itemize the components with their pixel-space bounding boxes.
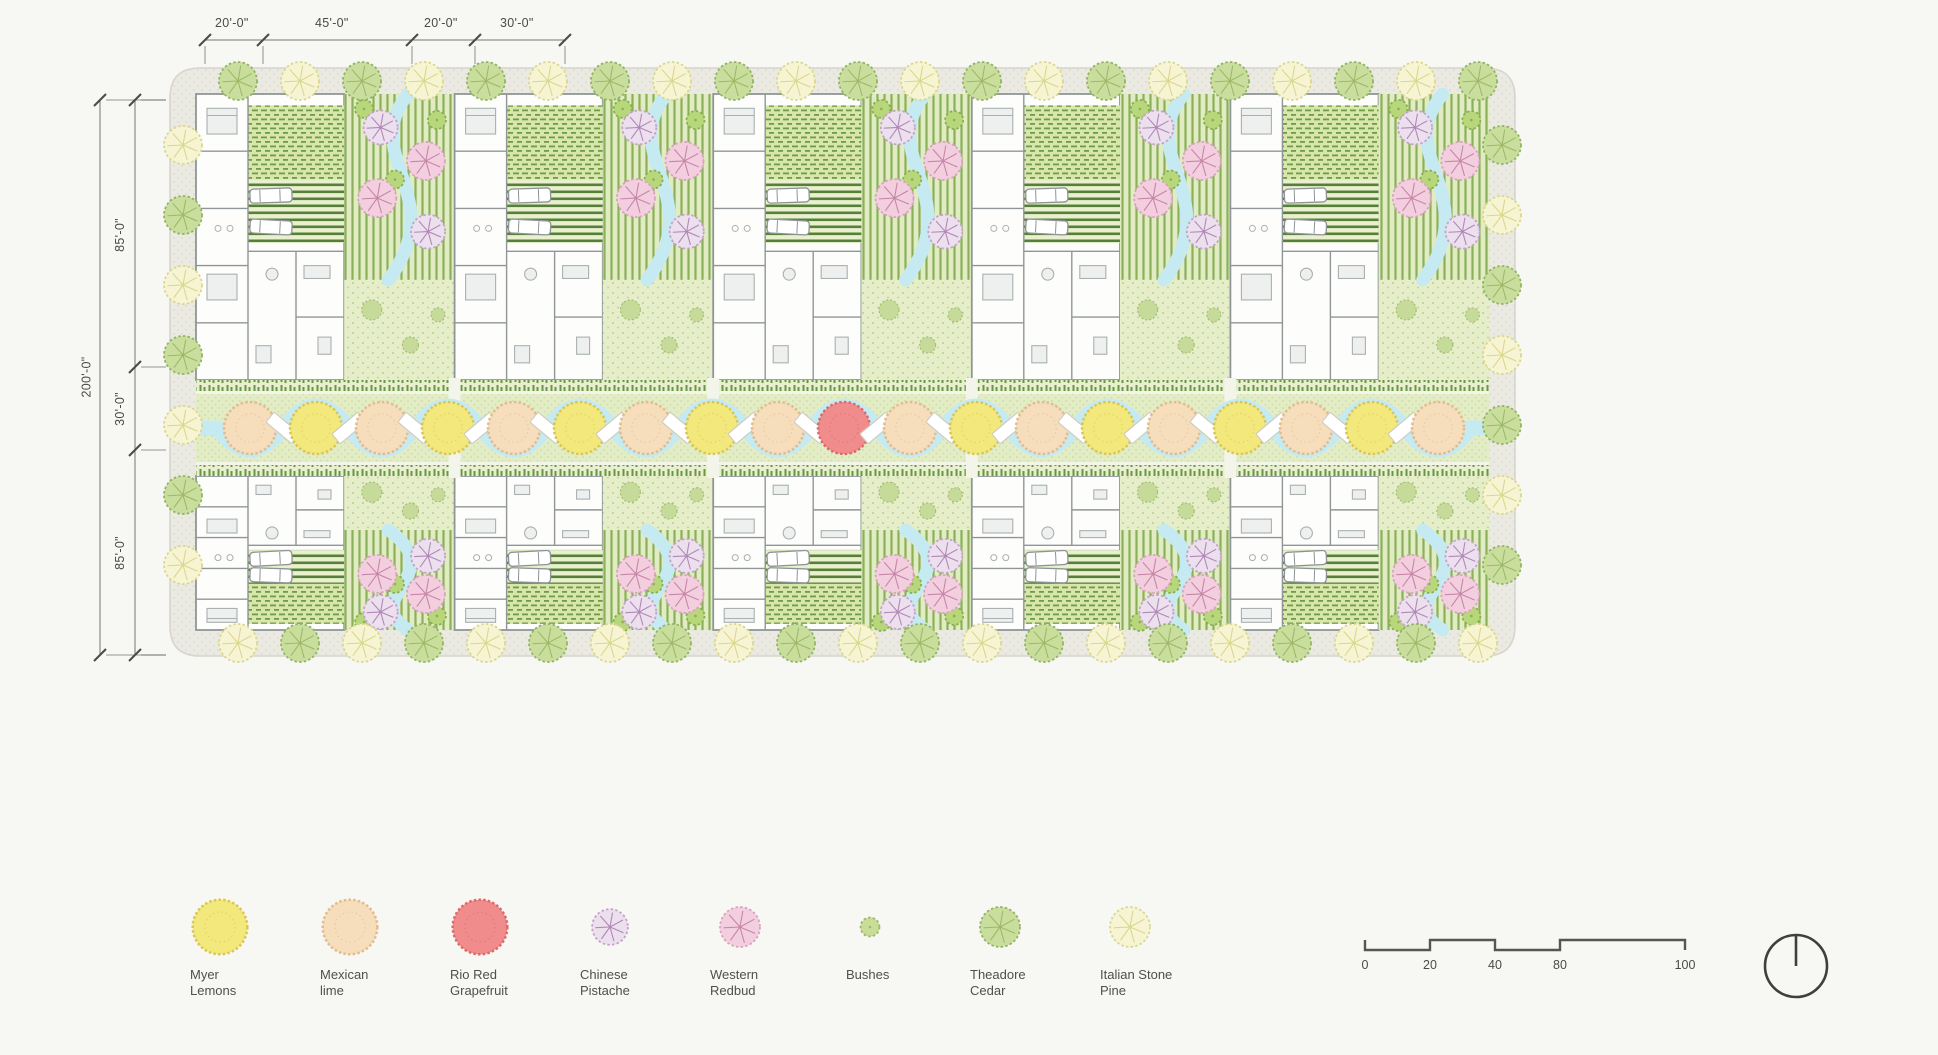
car [1026,568,1068,583]
furniture [207,274,237,300]
furniture [1241,608,1271,622]
chinese-pistache-tree [670,539,704,573]
orchard-plot [1024,105,1120,179]
garden-strip [603,476,713,631]
garden-strip [1379,476,1489,631]
small-green-tree [1462,111,1480,129]
garden-strip [344,94,454,380]
small-green-tree [428,111,446,129]
western-redbud-tree [876,179,914,217]
furniture [724,108,754,134]
legend-label: Chinese Pistache [580,967,652,1000]
orchard-plot [765,584,861,624]
furniture [1032,485,1047,494]
theadore-cedar-tree [1087,62,1125,100]
legend-label: Myer Lemons [190,967,262,1000]
italian-stone-pine-tree [164,406,202,444]
scale-bar: 0 20 40 80 100 [1355,930,1705,990]
orchard-plot [507,105,603,179]
western-redbud-tree [924,142,962,180]
dim-left-seg-2: 30'-0" [113,392,127,426]
mexican-lime-tree [1412,402,1464,454]
italian-stone-pine-tree [653,62,691,100]
western-redbud-symbol [710,893,770,959]
chinese-pistache-tree [364,595,398,629]
furniture [318,490,331,499]
car [508,550,551,566]
western-redbud-tree [358,179,396,217]
western-redbud-tree [1183,575,1221,613]
furniture [1338,531,1364,538]
furniture [1352,490,1365,499]
mexican-lime-tree [1016,402,1068,454]
bushes-tree [861,918,880,937]
chinese-pistache-tree [881,595,915,629]
western-redbud-tree [924,575,962,613]
furniture [256,485,271,494]
chinese-pistache-tree [411,215,445,249]
theadore-cedar-tree [343,62,381,100]
western-redbud-tree [876,555,914,593]
italian-stone-pine-tree [164,126,202,164]
bush [920,337,936,353]
bush [431,308,445,322]
chinese-pistache-tree [928,539,962,573]
mexican-lime-tree [620,402,672,454]
bushes-symbol [840,893,900,959]
rio-red-grapefruit-tree [453,900,508,955]
car [508,568,550,583]
dim-top-1: 20'-0" [215,16,249,30]
orchard-plot [248,105,344,179]
italian-stone-pine-symbol [1100,893,1160,959]
orchard-plot [1024,584,1120,624]
bush [1178,503,1194,519]
north-arrow-icon [1758,926,1838,1006]
furniture [563,531,589,538]
western-redbud-tree [407,142,445,180]
bush [948,488,962,502]
rio-red-grapefruit-tree [818,402,870,454]
theadore-cedar-tree [653,624,691,662]
car [250,550,293,566]
car [508,219,551,235]
furniture [515,485,530,494]
bush [690,308,704,322]
unit-row-top [196,94,1489,380]
bush [1437,503,1453,519]
meadow [603,476,713,530]
dim-top-2: 45'-0" [315,16,349,30]
bush [620,482,640,502]
scale-tick-40: 40 [1488,958,1502,972]
western-redbud-tree [665,575,703,613]
western-redbud-tree [617,555,655,593]
site-plan-canvas: 20'-0" 45'-0" 20'-0" 30'-0" 200'-0" 85'-… [0,0,1938,1055]
italian-stone-pine-tree [219,624,257,662]
furniture [724,274,754,300]
car [508,188,550,203]
bush [402,503,418,519]
meadow [861,280,971,380]
unit-row-bottom [196,476,1489,631]
scale-tick-80: 80 [1553,958,1567,972]
italian-stone-pine-tree [529,62,567,100]
myer-lemon-tree [422,402,474,454]
italian-stone-pine-tree [1335,624,1373,662]
car [250,188,292,203]
theadore-cedar-tree [777,624,815,662]
legend-label: Italian Stone Pine [1100,967,1192,1000]
chinese-pistache-tree [928,215,962,249]
legend-item-chinese-pistache: Chinese Pistache [580,893,710,1000]
italian-stone-pine-tree [1025,62,1063,100]
bush [920,503,936,519]
dim-top-4: 30'-0" [500,16,534,30]
western-redbud-tree [1393,179,1431,217]
bush [1207,488,1221,502]
housing-unit [713,94,861,380]
central-promenade [196,378,1489,478]
chinese-pistache-symbol [580,893,640,959]
furniture [1290,485,1305,494]
car [1284,219,1327,235]
italian-stone-pine-tree [901,62,939,100]
mexican-lime-tree [323,900,378,955]
chinese-pistache-tree [670,215,704,249]
orchard-plot [1282,584,1378,624]
car [250,568,292,583]
legend-label: Rio Red Grapefruit [450,967,522,1000]
theadore-cedar-tree [164,476,202,514]
furniture [773,346,788,363]
meadow [1120,476,1230,530]
theadore-cedar-tree [839,62,877,100]
theadore-cedar-symbol [970,893,1030,959]
furniture [983,519,1013,533]
hedge-row [196,464,1489,476]
housing-unit [196,476,344,630]
housing-unit [196,94,344,380]
legend-item-western-redbud: Western Redbud [710,893,840,1000]
housing-unit [455,94,603,380]
italian-stone-pine-tree [1483,476,1521,514]
legend-item-theadore-cedar: Theadore Cedar [970,893,1100,1000]
hedge-row [196,380,1489,392]
theadore-cedar-tree [591,62,629,100]
bush [362,300,382,320]
italian-stone-pine-tree [1149,62,1187,100]
legend-item-rio-red-grapefruit: Rio Red Grapefruit [450,893,580,1000]
garden-strip [1120,476,1230,631]
scale-bar-graphic [1355,930,1705,956]
orchard-plot [765,105,861,179]
bush [1465,308,1479,322]
furniture [821,531,847,538]
furniture [1241,274,1271,300]
furniture [1241,108,1271,134]
bush [690,488,704,502]
theadore-cedar-tree [1483,266,1521,304]
legend: Myer Lemons Mexican lime Rio Red Grapefr… [190,893,1230,1000]
dim-top-3: 20'-0" [424,16,458,30]
orchard-plot [248,584,344,624]
myer-lemon-tree [1082,402,1134,454]
myer-lemon-legend-glyph [190,895,250,957]
italian-stone-pine-tree [343,624,381,662]
western-redbud-tree [1134,555,1172,593]
theadore-cedar-tree [1025,624,1063,662]
garden-strip [344,476,454,631]
theadore-cedar-tree [405,624,443,662]
housing-unit [972,476,1120,630]
small-green-tree [945,111,963,129]
legend-item-mexican-lime: Mexican lime [320,893,450,1000]
italian-stone-pine-legend-glyph [1100,895,1160,957]
furniture [207,608,237,622]
car [1026,188,1068,203]
western-redbud-tree [1393,555,1431,593]
italian-stone-pine-tree [1211,624,1249,662]
small-green-tree [1204,111,1222,129]
bush [948,308,962,322]
theadore-cedar-tree [1397,624,1435,662]
car [1025,550,1068,566]
italian-stone-pine-tree [591,624,629,662]
myer-lemon-tree [686,402,738,454]
theadore-cedar-tree [1483,546,1521,584]
italian-stone-pine-tree [963,624,1001,662]
myer-lemon-tree [193,900,248,955]
housing-unit [1230,94,1378,380]
bush [1178,337,1194,353]
chinese-pistache-tree [1187,215,1221,249]
car [1284,188,1326,203]
legend-label: Mexican lime [320,967,392,1000]
western-redbud-tree [358,555,396,593]
theadore-cedar-tree [164,336,202,374]
meadow [344,280,454,380]
chinese-pistache-tree [1445,215,1479,249]
mexican-lime-tree [1148,402,1200,454]
car [767,568,809,583]
meadow [861,476,971,530]
italian-stone-pine-tree [777,62,815,100]
furniture [1032,346,1047,363]
meadow [603,280,713,380]
italian-stone-pine-tree [1273,62,1311,100]
italian-stone-pine-tree [1087,624,1125,662]
italian-stone-pine-tree [405,62,443,100]
bush [431,488,445,502]
furniture [318,337,331,354]
chinese-pistache-tree [1139,110,1173,144]
myer-lemon-tree [1346,402,1398,454]
theadore-cedar-legend-glyph [970,895,1030,957]
garden-strip [603,94,713,380]
furniture [1080,531,1106,538]
bush [1396,300,1416,320]
mexican-lime-legend-glyph [320,895,380,957]
bush [661,503,677,519]
chinese-pistache-tree [622,595,656,629]
legend-item-bushes: Bushes [840,893,970,983]
mexican-lime-tree [884,402,936,454]
legend-label: Bushes [846,967,918,983]
bush [402,337,418,353]
car [1025,219,1068,235]
car [767,550,810,566]
furniture [1290,346,1305,363]
italian-stone-pine-tree [467,624,505,662]
housing-unit [455,476,603,630]
housing-unit [1230,476,1378,630]
theadore-cedar-tree [1335,62,1373,100]
theadore-cedar-tree [164,196,202,234]
italian-stone-pine-tree [715,624,753,662]
furniture [983,108,1013,134]
western-redbud-tree [720,907,760,947]
mexican-lime-tree [224,402,276,454]
western-redbud-legend-glyph [710,895,770,957]
italian-stone-pine-tree [839,624,877,662]
chinese-pistache-tree [1398,595,1432,629]
meadow [1379,476,1489,530]
furniture [466,108,496,134]
furniture [563,266,589,279]
theadore-cedar-tree [901,624,939,662]
furniture [466,519,496,533]
myer-lemon-tree [950,402,1002,454]
housing-unit [972,94,1120,380]
furniture [1338,266,1364,279]
mexican-lime-tree [356,402,408,454]
italian-stone-pine-tree [1397,62,1435,100]
chinese-pistache-tree [411,539,445,573]
furniture [577,337,590,354]
myer-lemons-symbol [190,893,250,959]
furniture [207,519,237,533]
dim-left-seg-3: 85'-0" [113,536,127,570]
italian-stone-pine-tree [164,266,202,304]
car [767,219,810,235]
furniture [466,274,496,300]
bush [1138,300,1158,320]
theadore-cedar-tree [529,624,567,662]
dim-left-seg-1: 85'-0" [113,218,127,252]
garden-strip [861,476,971,631]
small-green-tree [687,111,705,129]
car [250,219,293,235]
theadore-cedar-tree [1211,62,1249,100]
theadore-cedar-tree [1459,62,1497,100]
bush [620,300,640,320]
chinese-pistache-legend-glyph [580,895,640,957]
chinese-pistache-tree [622,110,656,144]
chinese-pistache-tree [592,909,628,945]
mexican-lime-symbol [320,893,380,959]
car [767,188,809,203]
scale-tick-100: 100 [1675,958,1696,972]
bushes-legend-glyph [840,895,900,957]
furniture [256,346,271,363]
legend-item-myer-lemons: Myer Lemons [190,893,320,1000]
theadore-cedar-tree [715,62,753,100]
bush [879,300,899,320]
western-redbud-tree [407,575,445,613]
furniture [724,608,754,622]
chinese-pistache-tree [1187,539,1221,573]
furniture [1094,337,1107,354]
bush [661,337,677,353]
bush [1437,337,1453,353]
western-redbud-tree [1134,179,1172,217]
furniture [724,519,754,533]
garden-strip [1379,94,1489,380]
theadore-cedar-tree [467,62,505,100]
furniture [515,346,530,363]
myer-lemon-tree [290,402,342,454]
italian-stone-pine-tree [1110,907,1150,947]
furniture [1241,519,1271,533]
car [1284,550,1327,566]
north-indicator [1758,926,1838,1011]
theadore-cedar-tree [219,62,257,100]
meadow [344,476,454,530]
bush [362,482,382,502]
rio-red-grapefruit-symbol [450,893,510,959]
bush [1207,308,1221,322]
chinese-pistache-tree [1398,110,1432,144]
mexican-lime-tree [752,402,804,454]
western-redbud-tree [1441,575,1479,613]
furniture [304,266,330,279]
furniture [773,485,788,494]
dim-left-overall: 200'-0" [79,357,93,398]
bush [1138,482,1158,502]
western-redbud-tree [665,142,703,180]
scale-tick-20: 20 [1423,958,1437,972]
theadore-cedar-tree [1149,624,1187,662]
orchard-plot [1282,105,1378,179]
western-redbud-tree [617,179,655,217]
bush [1396,482,1416,502]
furniture [577,490,590,499]
scale-tick-0: 0 [1362,958,1369,972]
italian-stone-pine-tree [281,62,319,100]
legend-item-italian-stone-pine: Italian Stone Pine [1100,893,1230,1000]
bush [879,482,899,502]
housing-unit [713,476,861,630]
theadore-cedar-tree [980,907,1020,947]
legend-label: Western Redbud [710,967,782,1000]
theadore-cedar-tree [963,62,1001,100]
furniture [1080,266,1106,279]
bush [1465,488,1479,502]
italian-stone-pine-tree [1483,336,1521,374]
chinese-pistache-tree [364,110,398,144]
furniture [207,108,237,134]
rio-red-grapefruit-legend-glyph [450,895,510,957]
furniture [983,608,1013,622]
meadow [1120,280,1230,380]
furniture [835,337,848,354]
chinese-pistache-tree [1445,539,1479,573]
furniture [835,490,848,499]
italian-stone-pine-tree [1459,624,1497,662]
garden-strip [1120,94,1230,380]
furniture [1352,337,1365,354]
